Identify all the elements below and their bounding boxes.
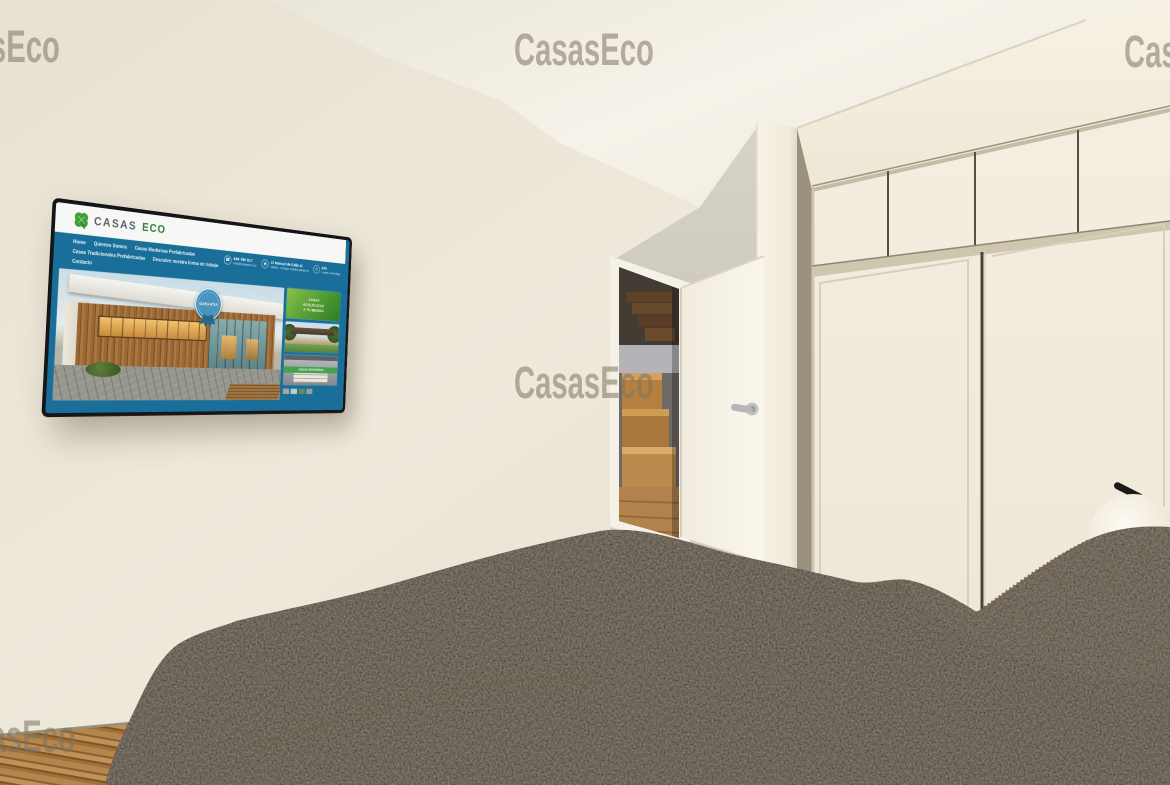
- hero-interior-light-2: [246, 339, 259, 360]
- hero-wood-deck: [225, 384, 282, 400]
- clock-icon: ◷: [313, 265, 320, 274]
- contact-hours: ◷ 24h Lunes a Domingo: [313, 265, 341, 276]
- nav-item-forma-de-trabajo: Descubre nuestra forma de trabajo: [153, 256, 219, 268]
- promo-line-3: A TU MEDIDA: [303, 307, 324, 313]
- door-opening: [619, 260, 681, 550]
- clover-logo-icon: [73, 210, 90, 230]
- nav-item-quienes-somos: Quienes Somos: [94, 241, 128, 250]
- nav-item-home: Home: [73, 239, 86, 246]
- thumbnail-2: [291, 389, 298, 394]
- brand-name-secondary: ECO: [142, 221, 166, 237]
- thumbnail-3: [298, 389, 304, 394]
- tile-ribbon: CASAS MODERNAS: [284, 366, 338, 373]
- guarantee-badge-text: GARANTÍA: [199, 301, 218, 307]
- hours-subtitle: Lunes a Domingo: [321, 271, 340, 276]
- bedroom-render: CASAS ECO Home Quienes Somos Casas Moder…: [0, 0, 1170, 785]
- sidebar-tile-traditional-house: [285, 321, 340, 353]
- stair-landing-wall: [619, 345, 681, 373]
- sidebar-tile-modern-house: CASAS MODERNAS: [283, 355, 338, 386]
- thumbnail-1: [283, 389, 290, 394]
- tile-ribbon-text: CASAS MODERNAS: [298, 368, 323, 372]
- website-content: GARANTÍA CASAS ECOLÓGICAS A TU MEDIDA: [46, 264, 344, 407]
- sidebar-tile-promo: CASAS ECOLÓGICAS A TU MEDIDA: [286, 288, 340, 321]
- brand-name-primary: CASAS: [94, 215, 138, 233]
- website-sidebar: CASAS ECOLÓGICAS A TU MEDIDA: [282, 288, 340, 400]
- contact-address: ◉ C/ Manuel de Falla 11 28400 - Collado …: [261, 259, 308, 273]
- contact-phone: ☎ 649 780 617 info@casaseco.es: [224, 255, 257, 267]
- tile-modern-roof: [284, 355, 338, 361]
- nav-item-contacto: Contacto: [72, 258, 92, 265]
- promo-line-1: CASAS: [309, 297, 320, 302]
- door-panel: [681, 256, 764, 562]
- hero-interior-light: [221, 335, 237, 359]
- location-pin-icon: ◉: [261, 259, 268, 269]
- phone-icon: ☎: [224, 255, 232, 265]
- tv-screen: CASAS ECO Home Quienes Somos Casas Moder…: [45, 202, 349, 413]
- thumbnail-4: [306, 389, 312, 394]
- sidebar-thumbnail-strip: [283, 388, 337, 394]
- casaseco-website: CASAS ECO Home Quienes Somos Casas Moder…: [46, 202, 347, 407]
- opening-edge-shadow: [672, 260, 679, 550]
- hero-image: GARANTÍA: [52, 268, 284, 400]
